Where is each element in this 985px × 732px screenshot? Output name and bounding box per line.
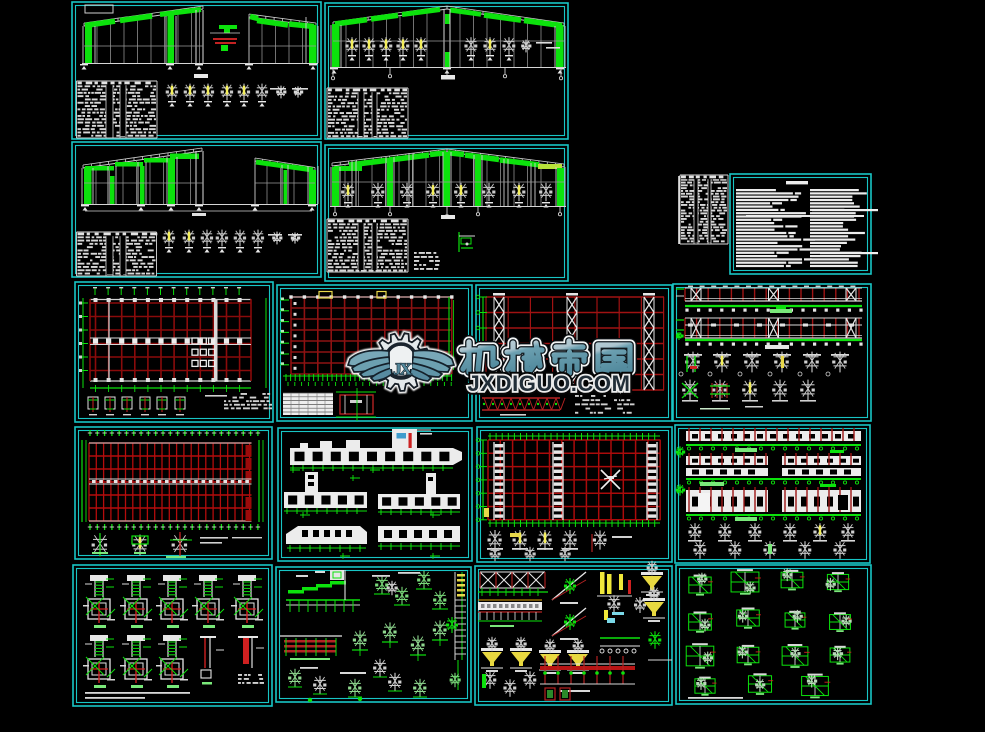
- svg-text:JXDIGUO.COM: JXDIGUO.COM: [467, 371, 630, 396]
- svg-text:JX: JX: [393, 360, 413, 379]
